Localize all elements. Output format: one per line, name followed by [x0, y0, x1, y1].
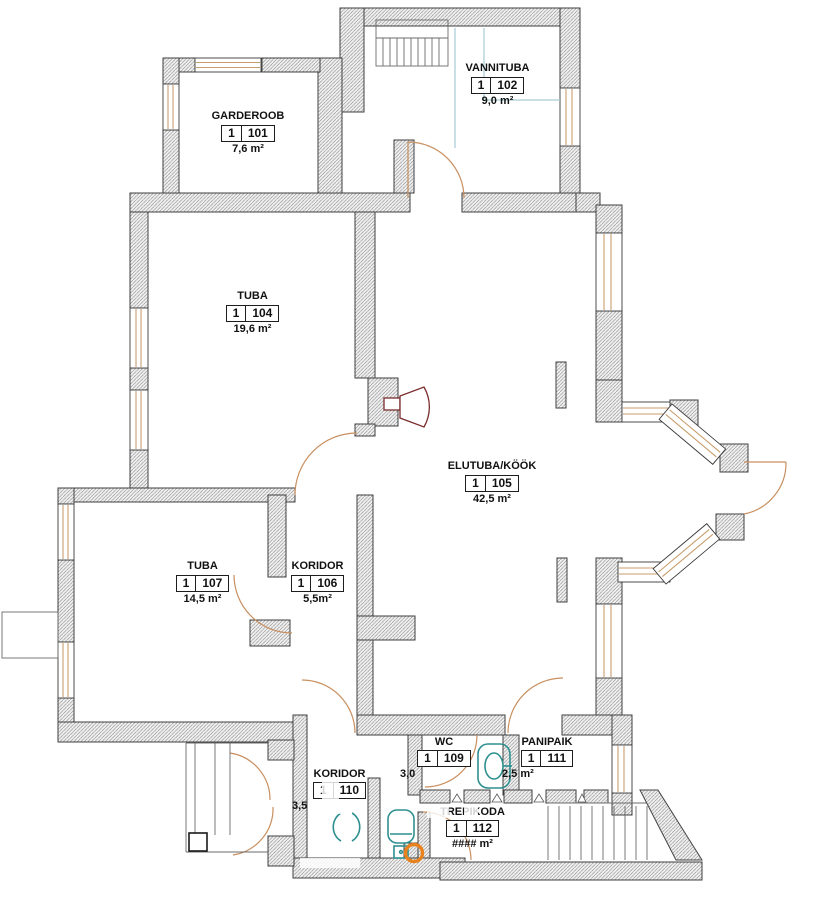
window-icon	[653, 524, 719, 584]
room-label-wc: WC 1109 3,0	[400, 736, 488, 780]
door-arc-icon	[295, 433, 357, 495]
room-label-vannituba: VANNITUBA 1102 9,0 m²	[430, 62, 565, 108]
stairs-top	[376, 20, 448, 66]
porch-bottom-left	[186, 743, 268, 852]
room-number-tag: 1102	[471, 77, 525, 94]
balcony-stub	[2, 612, 58, 658]
room-number-tag: 1111	[521, 750, 573, 767]
room-area: 5,5m²	[250, 593, 385, 606]
room-name: WC	[400, 736, 488, 748]
window-icon	[163, 84, 179, 130]
window-icon	[130, 390, 148, 450]
watermark-blotch	[318, 801, 352, 814]
room-name: ELUTUBA/KÖÖK	[422, 460, 562, 473]
watermark-blotch	[427, 805, 449, 818]
room-label-elutuba-kook: ELUTUBA/KÖÖK 1105 42,5 m²	[422, 460, 562, 506]
room-number-tag: 1101	[221, 125, 275, 142]
room-name: TUBA	[185, 290, 320, 303]
room-number-tag: 1104	[226, 305, 280, 322]
door-arc-icon	[408, 142, 464, 198]
basin-icon	[333, 813, 359, 841]
room-name: PANIPAIK	[502, 736, 592, 748]
room-area: 3,0	[400, 768, 488, 780]
room-name: TUBA	[135, 560, 270, 573]
room-label-koridor-106: KORIDOR 1106 5,5m²	[250, 560, 385, 606]
room-name: KORIDOR	[292, 768, 387, 780]
door-arc-icon	[230, 753, 273, 855]
window-icon	[130, 308, 148, 368]
window-icon	[596, 604, 622, 678]
room-number-tag: 1105	[465, 475, 519, 492]
room-area: 14,5 m²	[135, 593, 270, 606]
floor-plan: GARDEROOB 1101 7,6 m² VANNITUBA 1102 9,0…	[0, 0, 831, 915]
room-area: 19,6 m²	[185, 323, 320, 336]
room-number-tag: 1106	[291, 575, 345, 592]
watermark-blotch	[464, 805, 478, 818]
window-icon	[195, 58, 261, 72]
room-area: 42,5 m²	[422, 493, 562, 506]
column-marker	[189, 833, 207, 851]
door-arc-icon	[508, 678, 563, 733]
room-number-tag: 1107	[176, 575, 230, 592]
watermark-blotch	[300, 858, 360, 868]
room-name: KORIDOR	[250, 560, 385, 573]
window-icon	[596, 233, 622, 311]
room-label-panipaik: PANIPAIK 1111 2,5 m²	[502, 736, 592, 780]
room-name: GARDEROOB	[178, 110, 318, 123]
door-arc-icon	[744, 462, 786, 514]
watermark-blotch	[322, 779, 339, 800]
room-area: #### m²	[415, 838, 530, 850]
room-label-garderoob: GARDEROOB 1101 7,6 m²	[178, 110, 318, 156]
room-number-tag: 1112	[446, 820, 499, 837]
room-area: 2,5 m²	[502, 768, 592, 780]
room-area: 9,0 m²	[430, 95, 565, 108]
door-arc-icon	[302, 680, 355, 733]
window-icon	[612, 745, 632, 793]
window-icon	[58, 642, 74, 698]
room-label-tuba-107: TUBA 1107 14,5 m²	[135, 560, 270, 606]
room-label-tuba-104: TUBA 1104 19,6 m²	[185, 290, 320, 336]
room-number-tag: 1109	[417, 750, 471, 767]
window-icon	[58, 504, 74, 560]
room-area: 7,6 m²	[178, 143, 318, 156]
room-name: VANNITUBA	[430, 62, 565, 75]
room-number-tag: 1110	[313, 782, 366, 799]
